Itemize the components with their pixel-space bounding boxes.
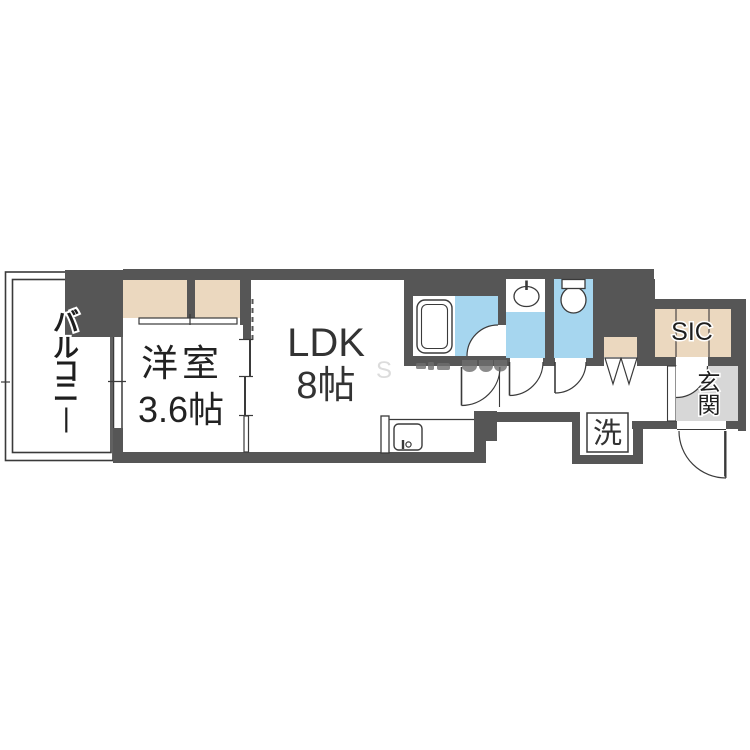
svg-text:3.6帖: 3.6帖 [138, 389, 224, 430]
svg-text:ニ: ニ [53, 377, 79, 407]
svg-text:洋室: 洋室 [141, 343, 223, 384]
svg-text:S: S [376, 357, 392, 384]
svg-text:洗: 洗 [593, 417, 622, 450]
svg-text:8帖: 8帖 [296, 365, 355, 407]
svg-text:LDK: LDK [287, 321, 365, 365]
svg-text:SIC: SIC [671, 318, 713, 346]
svg-text:関: 関 [698, 392, 721, 418]
